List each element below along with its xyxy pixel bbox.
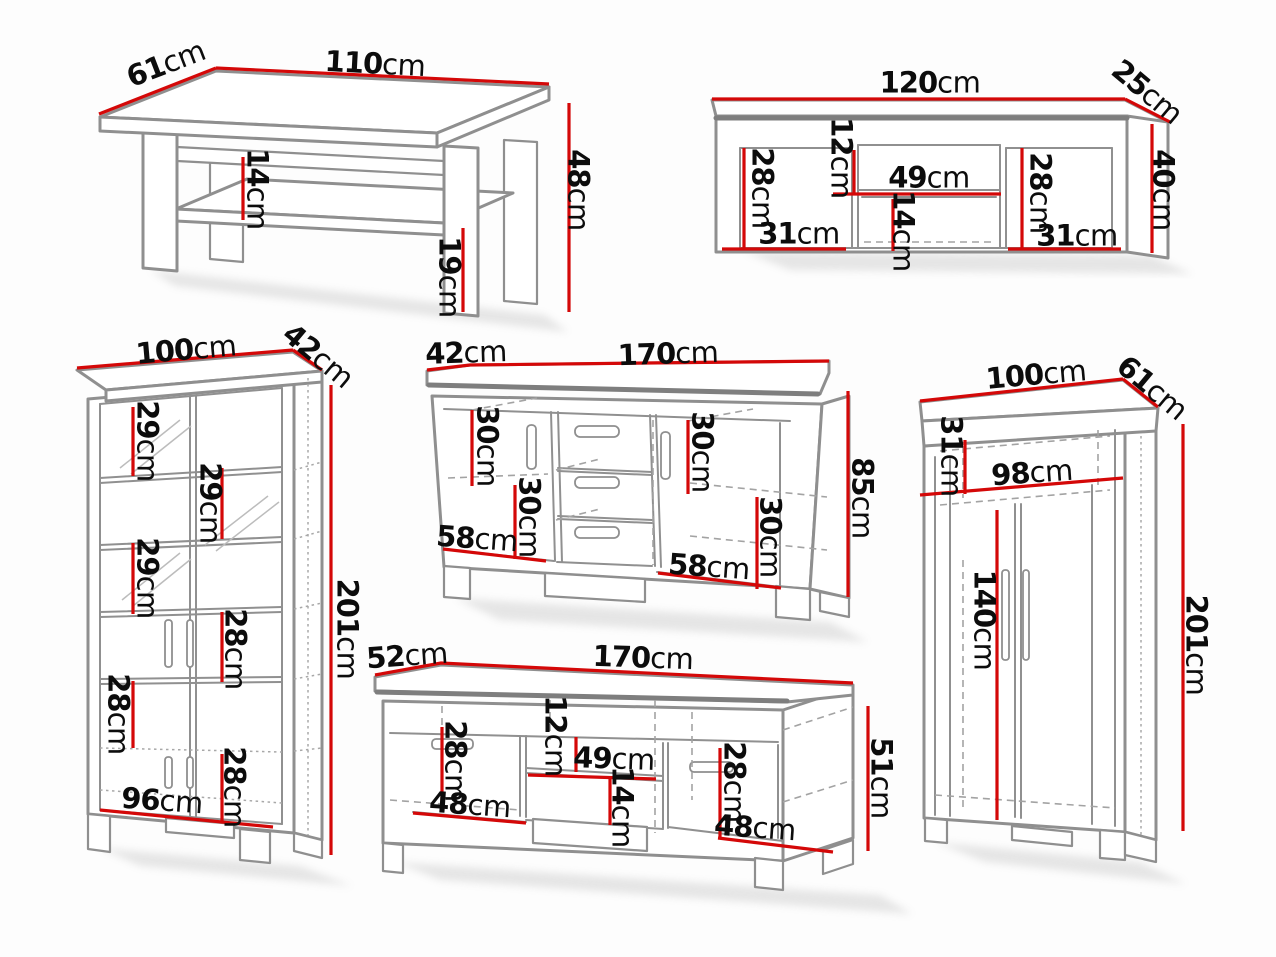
dim-value: 19 [433,236,467,274]
dim-sideboard-depth: 42cm [425,337,508,369]
dim-value: 30 [686,411,720,449]
dim-sideboard-left-bottom: 30cm [515,476,544,558]
dim-unit: cm [158,783,203,820]
dim-unit: cm [705,549,750,586]
dim-value: 201 [331,579,365,637]
dim-unit: cm [131,576,165,619]
dim-unit: cm [381,47,426,83]
dim-wardrobe-hanging-space: 140cm [970,570,999,671]
dim-value: 30 [754,496,788,534]
dim-unit: cm [650,641,694,676]
dim-value: 40 [1147,149,1181,187]
dim-value: 12 [825,117,859,155]
dim-value: 100 [134,332,194,371]
dim-unit: cm [606,805,640,848]
dim-value: 58 [435,519,476,556]
dim-unit: cm [797,217,840,251]
dim-unit: cm [1042,353,1088,391]
dim-value: 14 [887,190,921,228]
dim-unit: cm [754,535,788,578]
dim-wardrobe-top-shelf: 31cm [937,415,966,497]
dim-unit: cm [219,647,253,690]
dim-value: 31 [1036,219,1074,253]
dim-unit: cm [473,521,518,558]
dim-value: 29 [131,537,165,575]
dim-unit: cm [433,275,467,318]
dim-value: 201 [1180,595,1214,653]
dim-value: 28 [746,147,780,185]
dim-value: 30 [471,405,505,443]
dim-unit: cm [935,454,969,497]
dim-tv-stand-left-width: 48cm [428,788,511,823]
dim-unit: cm [1028,453,1073,490]
dim-value: 170 [592,639,651,675]
dim-display-cabinet-shelf-4: 28cm [221,608,250,690]
dim-value: 58 [667,547,708,584]
dim-value: 28 [1024,152,1058,190]
dim-value: 28 [218,746,252,784]
dim-wall-shelf-depth: 25cm [1106,55,1187,130]
dim-tv-stand-niche-top: 12cm [541,695,570,777]
dim-tv-stand-right-width: 48cm [713,811,796,846]
dim-unit: cm [751,810,796,847]
dim-value: 96 [120,781,161,818]
dim-value: 170 [617,336,676,372]
dim-display-cabinet-shelf-6: 28cm [220,746,249,828]
dim-wall-shelf-left-width: 31cm [758,220,840,249]
dim-value: 48 [428,785,469,822]
dim-sideboard-left-width: 58cm [435,522,518,557]
dim-value: 31 [935,415,969,453]
dim-value: 85 [846,457,880,495]
dim-value: 98 [990,456,1031,493]
dim-sideboard-right-width: 58cm [667,550,750,585]
dim-coffee-table-leg-space: 19cm [435,236,464,318]
dim-sideboard-right-bottom: 30cm [756,496,785,578]
dim-wall-shelf-niche-width: 49cm [888,164,970,193]
dim-unit: cm [241,187,275,230]
dim-display-cabinet-depth: 42cm [277,319,358,394]
dim-unit: cm [131,439,165,482]
dim-unit: cm [968,627,1002,670]
dim-value: 28 [439,720,473,758]
dim-unit: cm [331,636,365,679]
dim-display-cabinet-width: 100cm [135,331,238,369]
dim-unit: cm [686,450,720,493]
dim-unit: cm [887,229,921,272]
dim-display-cabinet-height: 201cm [333,579,362,680]
dim-value: 100 [984,357,1044,396]
dim-coffee-table-width: 110cm [324,47,426,81]
dim-coffee-table-height: 48cm [564,149,593,231]
dim-unit: cm [846,496,880,539]
dim-unit: cm [466,787,511,824]
dim-unit: cm [403,636,448,673]
dim-unit: cm [471,444,505,487]
dim-tv-stand-depth: 52cm [365,639,448,674]
dim-unit: cm [192,328,238,366]
dim-wall-shelf-niche-top: 12cm [827,117,856,199]
dimension-labels: 61cm 110cm 48cm 14cm 19cm 120cm 25cm 40c… [0,0,1276,957]
dim-wall-shelf-niche-bottom: 14cm [889,190,918,272]
dim-value: 48 [713,808,754,845]
dim-unit: cm [675,335,719,370]
dim-unit: cm [102,712,136,755]
dim-value: 14 [241,148,275,186]
dim-display-cabinet-shelf-5: 28cm [104,673,133,755]
dim-value: 28 [219,608,253,646]
dim-value: 29 [131,400,165,438]
dim-value: 48 [562,149,596,187]
dim-wall-shelf-right-width: 31cm [1036,222,1118,251]
dim-tv-stand-niche-bottom: 14cm [608,766,637,848]
dim-value: 140 [968,570,1002,628]
dim-value: 110 [324,44,383,81]
dim-value: 14 [606,766,640,804]
dim-tv-stand-height: 51cm [867,737,896,819]
dim-value: 28 [718,741,752,779]
dim-unit: cm [463,334,507,369]
dim-value: 51 [865,737,899,775]
dim-unit: cm [865,776,899,819]
dim-display-cabinet-shelf-1: 29cm [133,400,162,482]
dim-value: 30 [513,476,547,514]
dim-tv-stand-width: 170cm [592,642,694,674]
dim-sideboard-left-top: 30cm [473,405,502,487]
dim-unit: cm [937,66,980,100]
dim-sideboard-width: 170cm [617,338,719,370]
dim-value: 12 [539,695,573,733]
dim-unit: cm [194,501,228,544]
dim-wall-shelf-height: 40cm [1149,149,1178,231]
dim-sideboard-right-top: 30cm [688,411,717,493]
dim-wardrobe-depth: 61cm [1111,351,1192,426]
dim-display-cabinet-shelf-2: 29cm [196,462,225,544]
dim-unit: cm [562,188,596,231]
dim-value: 52 [365,639,406,676]
dim-wardrobe-inner-width: 98cm [990,456,1073,491]
dim-wardrobe-width: 100cm [985,356,1088,394]
dim-unit: cm [927,161,970,195]
dim-coffee-table-depth: 61cm [123,36,210,92]
dim-unit: cm [1147,188,1181,231]
dim-value: 120 [880,66,938,100]
dim-display-cabinet-shelf-3: 29cm [133,537,162,619]
dim-unit: cm [218,785,252,828]
dim-unit: cm [539,734,573,777]
dim-coffee-table-shelf-gap: 14cm [243,148,272,230]
dim-value: 28 [102,673,136,711]
dim-wall-shelf-width: 120cm [880,69,981,98]
dim-value: 42 [425,336,465,371]
dim-value: 31 [758,217,796,251]
dim-unit: cm [825,156,859,199]
furniture-dimensions-diagram: 61cm 110cm 48cm 14cm 19cm 120cm 25cm 40c… [0,0,1276,957]
dim-wardrobe-height: 201cm [1182,595,1211,696]
dim-display-cabinet-inner-width: 96cm [120,784,203,819]
dim-unit: cm [1180,652,1214,695]
dim-value: 29 [194,462,228,500]
dim-unit: cm [1075,219,1118,253]
dim-sideboard-height: 85cm [848,457,877,539]
